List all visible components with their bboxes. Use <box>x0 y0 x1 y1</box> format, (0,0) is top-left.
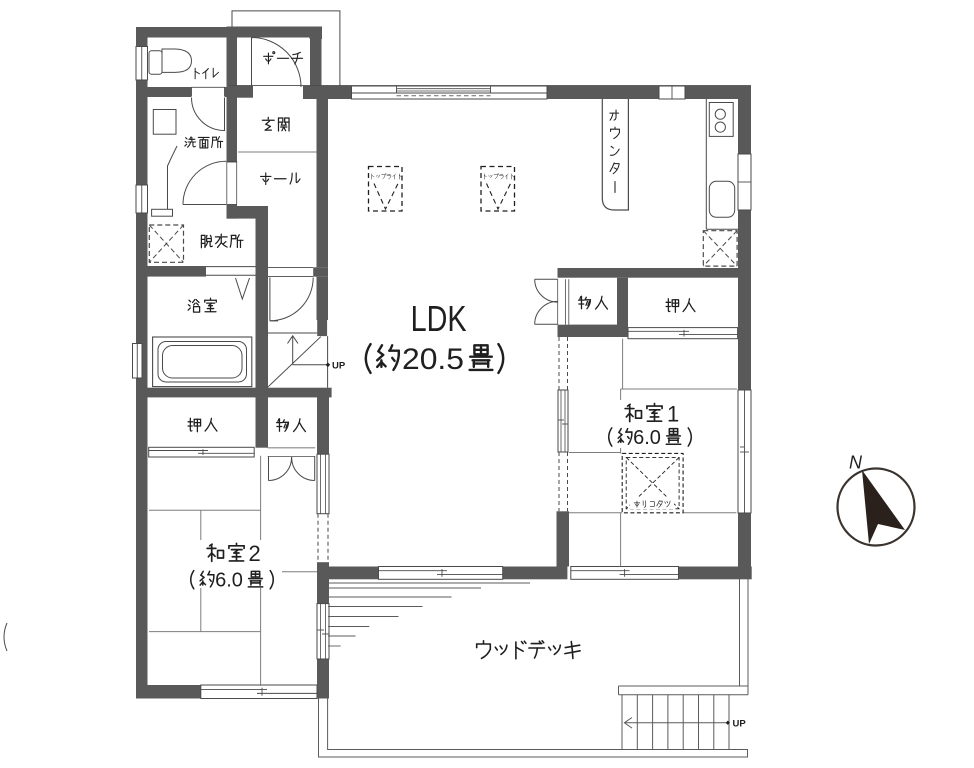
svg-text:LDK: LDK <box>411 298 467 339</box>
svg-text:20.5: 20.5 <box>402 343 464 376</box>
svg-text:6.0: 6.0 <box>633 427 661 449</box>
svg-text:6.0: 6.0 <box>215 570 243 592</box>
svg-text:UP: UP <box>733 718 747 729</box>
svg-text:2: 2 <box>249 541 261 566</box>
svg-text:UP: UP <box>332 360 346 371</box>
svg-text:N: N <box>849 453 863 473</box>
svg-text:1: 1 <box>667 401 679 426</box>
